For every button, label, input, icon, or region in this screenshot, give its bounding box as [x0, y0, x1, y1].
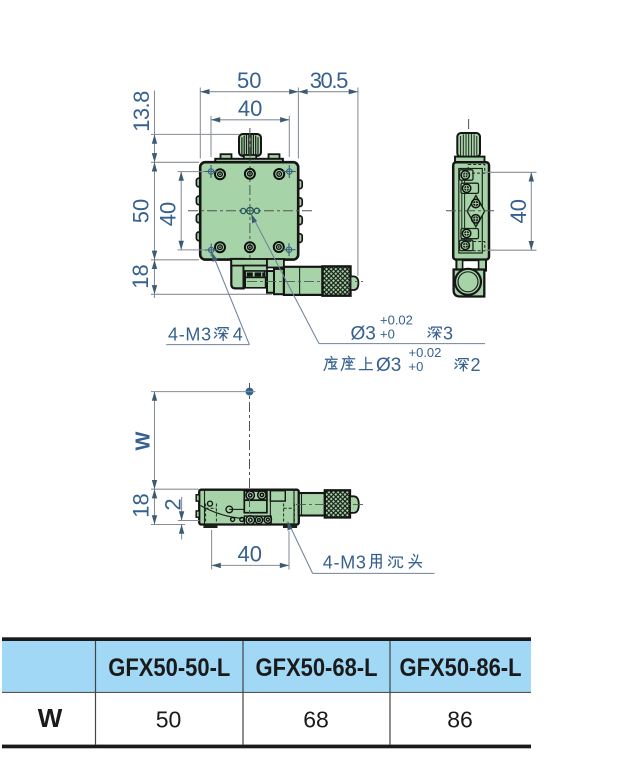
svg-text:4-M3: 4-M3	[323, 553, 367, 573]
svg-text:4: 4	[233, 325, 243, 345]
svg-text:W: W	[132, 431, 154, 450]
svg-text:GFX50-86-L: GFX50-86-L	[400, 654, 522, 682]
svg-text:30.5: 30.5	[310, 68, 348, 93]
svg-text:18: 18	[128, 264, 153, 288]
svg-text:40: 40	[156, 202, 181, 226]
svg-text:50: 50	[237, 68, 261, 93]
svg-text:4-M3: 4-M3	[168, 325, 212, 345]
svg-text:W: W	[38, 703, 63, 733]
svg-text:86: 86	[447, 707, 473, 733]
svg-text:+0: +0	[409, 359, 424, 374]
svg-text:GFX50-68-L: GFX50-68-L	[256, 654, 378, 682]
svg-text:+0.02: +0.02	[380, 313, 413, 328]
svg-text:50: 50	[156, 707, 182, 733]
svg-text:GFX50-50-L: GFX50-50-L	[108, 654, 230, 682]
svg-text:2: 2	[161, 498, 186, 510]
svg-text:3: 3	[443, 324, 453, 344]
svg-text:68: 68	[303, 707, 329, 733]
svg-text:+0.02: +0.02	[409, 345, 442, 360]
svg-text:40: 40	[237, 542, 261, 567]
svg-text:2: 2	[471, 355, 481, 375]
svg-text:13.8: 13.8	[129, 91, 154, 132]
svg-text:18: 18	[129, 493, 154, 517]
svg-text:+0: +0	[380, 327, 395, 342]
svg-text:40: 40	[238, 96, 262, 121]
svg-text:50: 50	[129, 199, 154, 223]
svg-text:Ø3: Ø3	[376, 355, 401, 376]
svg-text:Ø3: Ø3	[351, 324, 376, 345]
svg-text:40: 40	[506, 199, 531, 223]
